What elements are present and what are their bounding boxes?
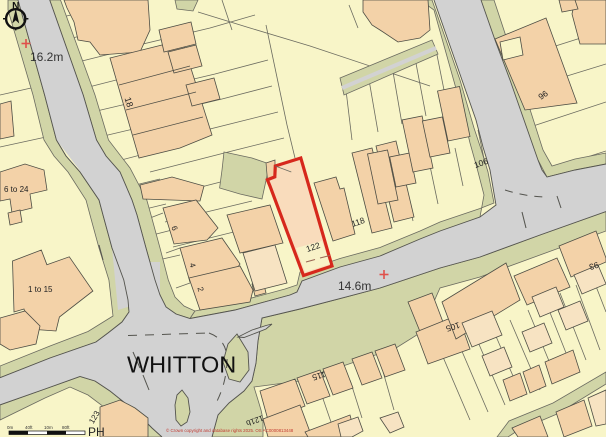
svg-text:© Crown copyright and database: © Crown copyright and database rights 20… (166, 428, 294, 433)
svg-text:1 to 15: 1 to 15 (28, 285, 53, 294)
svg-text:40ft: 40ft (25, 425, 33, 430)
svg-text:6 to 24: 6 to 24 (4, 185, 29, 194)
svg-text:0m: 0m (7, 425, 14, 430)
svg-text:16.2m: 16.2m (30, 50, 63, 64)
svg-text:N: N (12, 1, 19, 12)
svg-text:80ft: 80ft (62, 425, 70, 430)
svg-text:10m: 10m (44, 425, 53, 430)
svg-text:PH: PH (88, 425, 105, 437)
svg-text:WHITTON: WHITTON (127, 351, 236, 377)
svg-text:14.6m: 14.6m (338, 279, 371, 293)
